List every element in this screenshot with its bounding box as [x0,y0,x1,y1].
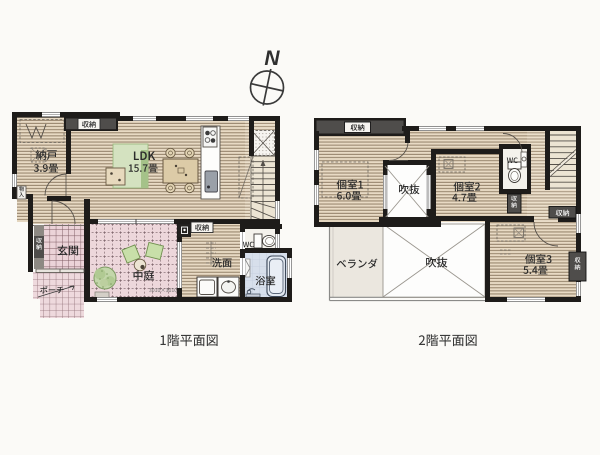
svg-text:N: N [264,47,280,70]
